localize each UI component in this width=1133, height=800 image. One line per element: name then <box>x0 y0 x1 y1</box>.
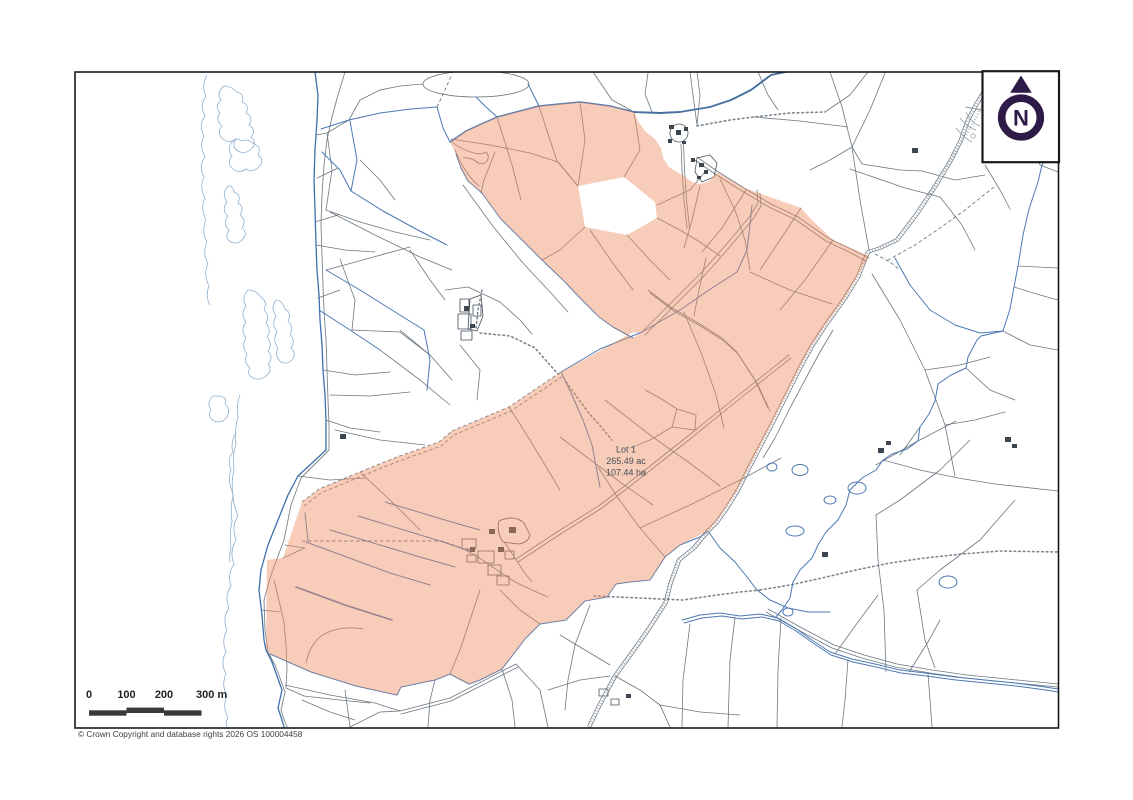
svg-text:265.49 ac: 265.49 ac <box>606 456 646 466</box>
svg-text:200: 200 <box>155 689 173 701</box>
svg-text:N: N <box>1013 106 1029 131</box>
svg-text:100: 100 <box>117 689 135 701</box>
svg-text:300 m: 300 m <box>196 689 227 701</box>
svg-text:107.44 ha: 107.44 ha <box>606 468 646 478</box>
svg-text:© Crown Copyright and database: © Crown Copyright and database rights 20… <box>78 729 303 739</box>
svg-text:0: 0 <box>86 689 92 701</box>
svg-text:Lot 1: Lot 1 <box>616 445 636 455</box>
